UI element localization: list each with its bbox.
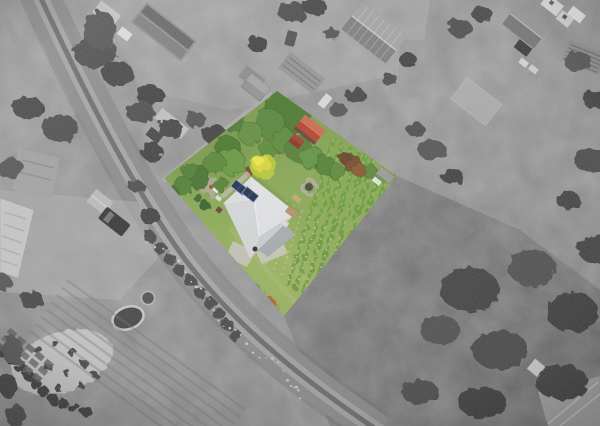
vignette — [0, 0, 600, 426]
aerial-photo-canvas — [0, 0, 600, 426]
aerial-photo — [0, 0, 600, 426]
